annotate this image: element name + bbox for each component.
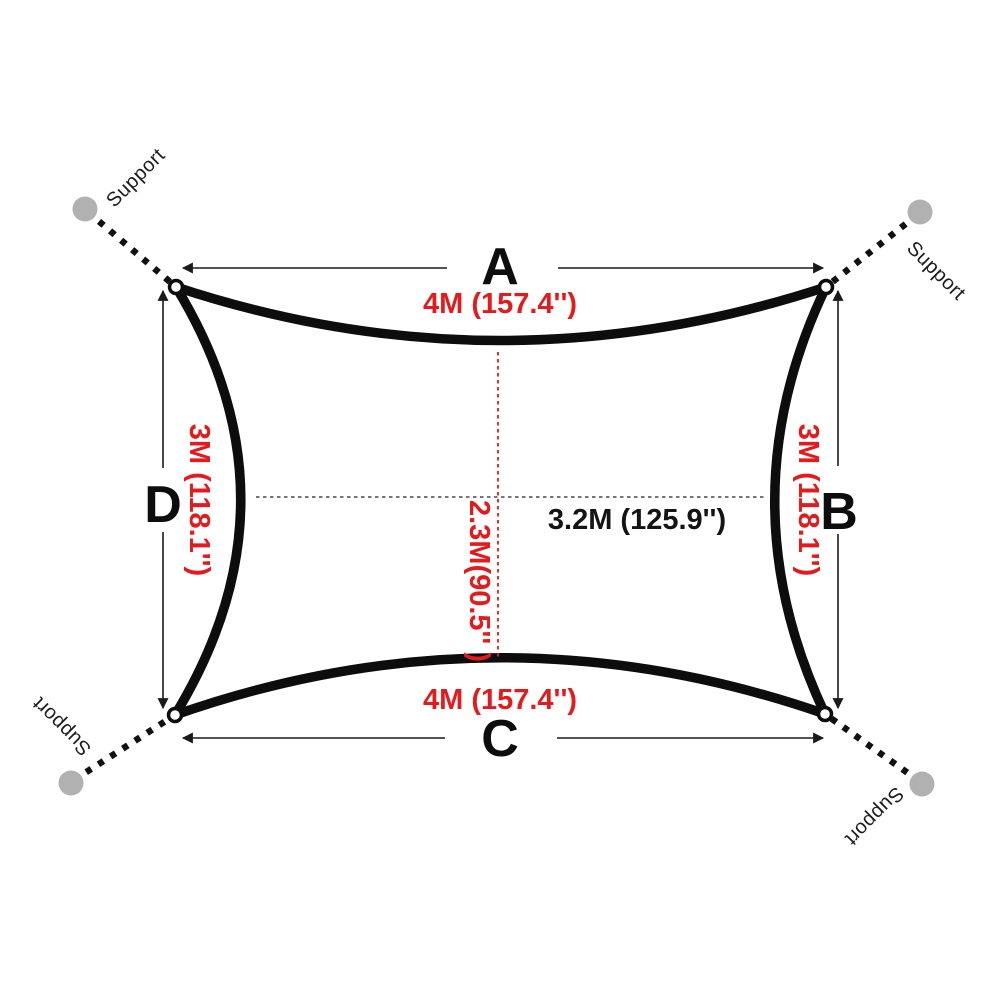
dimension-bottom: 4M (157.4'') [423, 684, 577, 716]
sail-outline [175, 287, 826, 715]
support-label-bottom-left: Support [28, 692, 96, 760]
support-post-dot [73, 197, 98, 222]
dimension-mid-height: 2.3M(90.5'' ) [463, 500, 495, 662]
corner-ring-bottom-right [819, 708, 832, 721]
support-label-top-left: Support [102, 144, 170, 212]
side-label-b: B [820, 483, 858, 541]
rope-bottom-right [825, 714, 919, 781]
corner-ring-bottom-left [169, 709, 182, 722]
rope-top-left [88, 212, 176, 287]
support-post-dot [910, 772, 935, 797]
support-label-bottom-right: Support [840, 782, 908, 850]
diagram-canvas: Support Support Support Support A B C D … [0, 0, 1000, 1000]
support-post-dot [908, 200, 933, 225]
side-label-c: C [481, 710, 519, 768]
support-label-top-right: Support [902, 237, 970, 305]
dimension-mid-width: 3.2M (125.9'') [548, 504, 726, 536]
dimension-right: 3M (118.1'') [792, 424, 824, 576]
shade-sail-diagram: Support Support Support Support A B C D … [0, 0, 1000, 1000]
dimension-left: 3M (118.1'') [183, 424, 215, 576]
dimension-top: 4M (157.4'') [423, 288, 577, 320]
corner-ring-top-right [820, 281, 833, 294]
corner-ring-top-left [170, 281, 183, 294]
side-label-d: D [144, 476, 182, 534]
support-post-dot [59, 771, 84, 796]
